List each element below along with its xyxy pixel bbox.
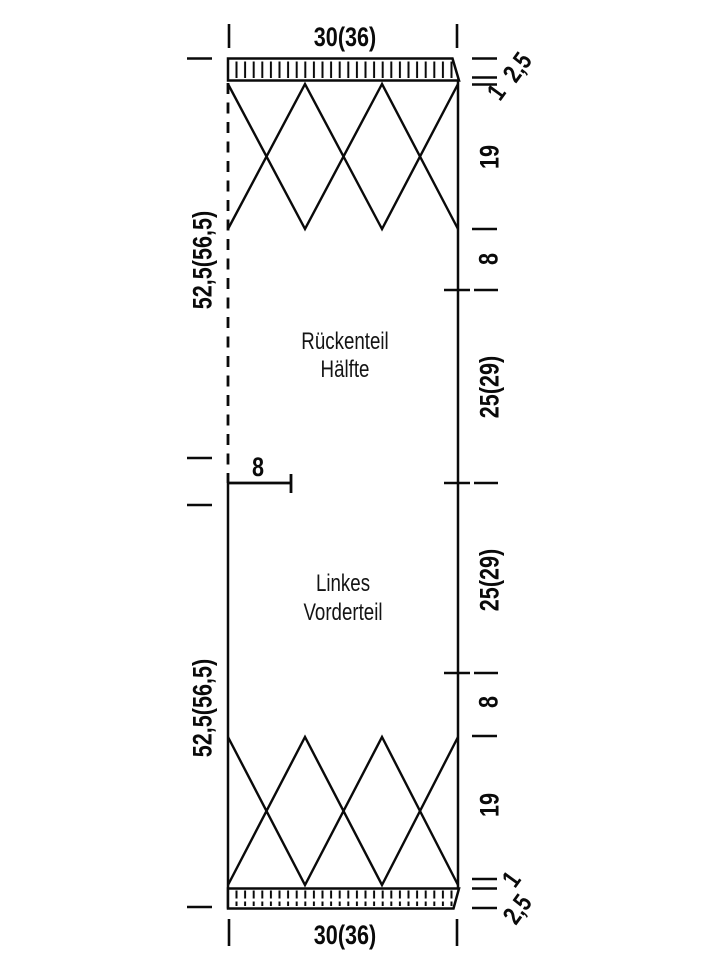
- top-body-height-label: 25(29): [475, 356, 505, 418]
- bottom-band-ribbing-hatch: [231, 891, 453, 907]
- bottom-diamond-pattern: [228, 737, 458, 885]
- bottom-roll-edge-label: 1: [496, 866, 526, 892]
- top-width-label: 30(36): [314, 23, 376, 53]
- top-zigzag-line-b: [228, 84, 458, 229]
- front-piece-total-height-label: 52,5(56,5): [188, 659, 218, 757]
- middle-shoulder-dimension: 8: [228, 453, 291, 493]
- back-piece-name-line1: Rückenteil: [301, 328, 388, 355]
- shoulder-width-label: 8: [252, 453, 264, 483]
- top-plain-height-label: 8: [474, 253, 504, 265]
- bottom-width-label: 30(36): [314, 921, 376, 951]
- back-piece-name-line2: Hälfte: [321, 356, 370, 383]
- front-piece-name-line2: Vorderteil: [303, 599, 382, 626]
- top-diamond-pattern: [228, 84, 458, 229]
- back-piece-outline: [228, 81, 458, 909]
- bottom-ribbing-band: [228, 889, 459, 909]
- front-piece-name-line1: Linkes: [316, 570, 370, 597]
- pattern-schematic-page: 30(36): [0, 0, 720, 960]
- front-piece-name: Linkes Vorderteil: [303, 570, 382, 626]
- back-piece-total-height-label: 52,5(56,5): [188, 211, 218, 309]
- bottom-body-height-label: 25(29): [475, 549, 505, 611]
- top-band-ribbing-hatch: [231, 61, 453, 78]
- garment-schematic-diagram: 30(36): [0, 0, 720, 960]
- left-dimension-ticks: [187, 59, 212, 908]
- back-piece-name: Rückenteil Hälfte: [301, 328, 388, 383]
- top-pattern-height-label: 19: [475, 145, 505, 169]
- bottom-zigzag-line-b: [228, 737, 458, 885]
- top-roll-edge-label: 1: [481, 79, 511, 105]
- top-width-dimension: 30(36): [229, 23, 457, 53]
- top-ribbing-band: [228, 59, 459, 81]
- bottom-band-height-label: 2,5: [497, 889, 537, 929]
- bottom-pattern-height-label: 19: [475, 793, 505, 817]
- top-band-height-label: 2,5: [497, 47, 537, 87]
- bottom-plain-height-label: 8: [474, 696, 504, 708]
- right-dimension-ticks: [444, 59, 498, 909]
- bottom-width-dimension: 30(36): [229, 919, 457, 951]
